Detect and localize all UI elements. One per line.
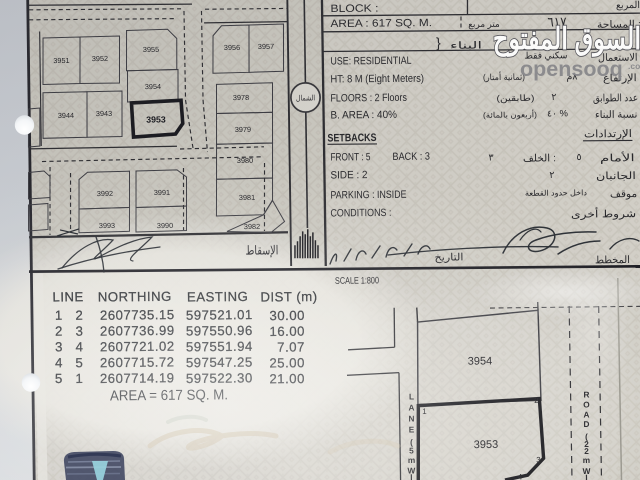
- svg-text:opensooq: opensooq: [520, 57, 623, 81]
- svg-text:السوق المفتوح: السوق المفتوح: [493, 21, 640, 57]
- svg-text:.com: .com: [628, 61, 640, 71]
